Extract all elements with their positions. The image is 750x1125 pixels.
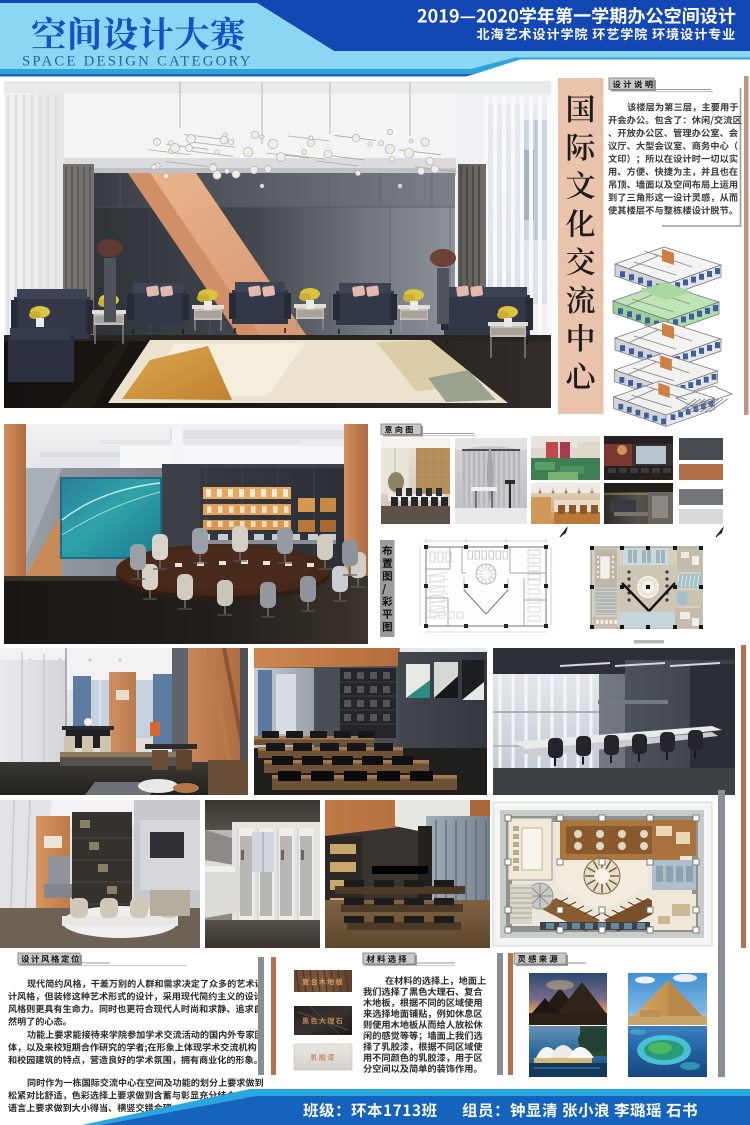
svg-text:SPACE DESIGN CATEGORY: SPACE DESIGN CATEGORY: [22, 54, 253, 70]
